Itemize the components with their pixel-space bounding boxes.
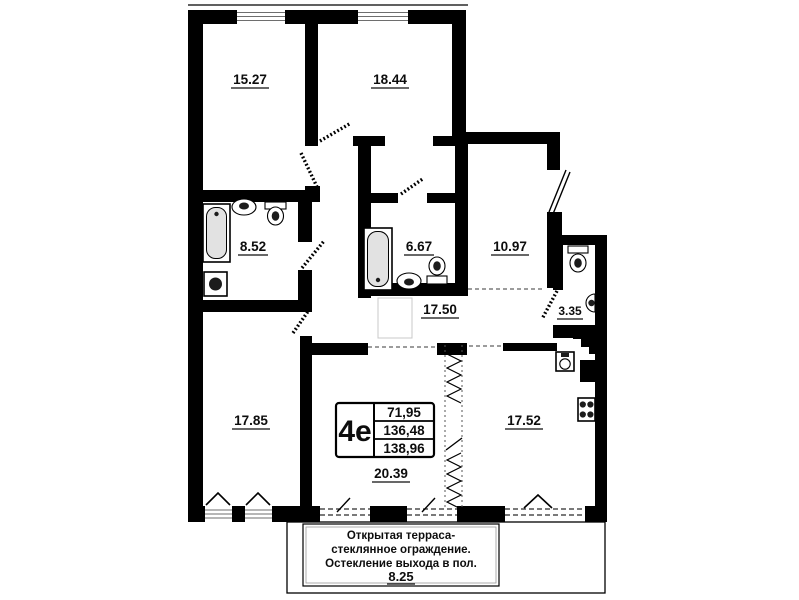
room-label-top-left: 15.27 [233,72,267,87]
room-label-wc: 3.35 [558,304,582,318]
room-label-room-right: 10.97 [493,239,527,254]
room-label-bathroom-left: 8.52 [240,239,266,254]
room-label-kitchen: 17.52 [507,413,541,428]
area-without-balcony-value: 136,48 [383,423,425,438]
terrace-area-value: 8.25 [388,569,413,584]
toilet-icon [568,246,588,272]
terrace-note-line2: стеклянное ограждение. [331,544,471,556]
room-label-corridor: 17.50 [423,302,457,317]
living-area-value: 71,95 [387,405,421,420]
window-top-right [358,10,408,24]
sink-icon [232,199,256,215]
floor-plan-page: 15.27 18.44 8.52 6.67 10.97 3.35 17.50 1… [0,0,799,600]
total-area-value: 138,96 [383,441,425,456]
unit-type-label: 4е [338,415,371,448]
sink-icon [397,273,421,289]
window-top-left [237,10,285,24]
room-label-top-right: 18.44 [373,72,407,87]
washing-machine-icon [204,272,227,296]
type-table: 4е 71,95 136,48 138,96 [336,403,434,457]
room-label-bottom-left: 17.85 [234,413,268,428]
terrace-note-line1: Открытая терраса- [347,530,456,542]
toilet-icon [427,257,447,284]
bathtub-icon [203,204,230,262]
bathtub-icon [364,228,392,290]
room-label-living-room: 20.39 [374,466,408,481]
stove-icon [578,398,595,421]
room-label-bathroom-center: 6.67 [406,239,432,254]
kitchen-sink-icon [556,352,574,371]
floor-plan-drawing: 15.27 18.44 8.52 6.67 10.97 3.35 17.50 1… [0,0,799,600]
